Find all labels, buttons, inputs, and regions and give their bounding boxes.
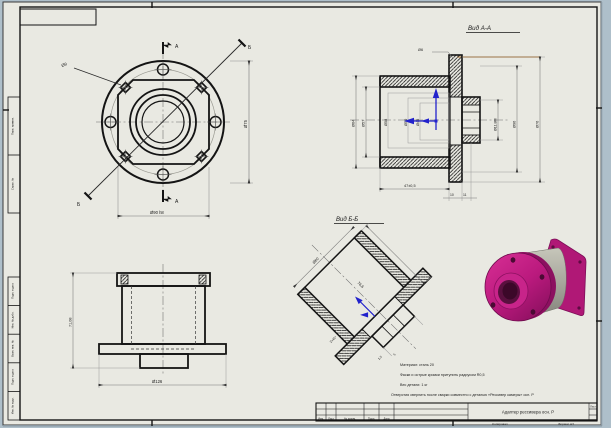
sheet-cell-label: Лист <box>590 405 596 409</box>
engineering-drawing: Перв. примен. Справ. № Подп. и дата Инв.… <box>0 0 611 428</box>
note-line-4: Отверстия сверлить после сварки совместн… <box>391 393 534 397</box>
dim-base-dia: Ø126 <box>152 379 163 384</box>
view-aa-label: Вид А-А <box>468 25 491 32</box>
back-flange-hole <box>551 245 554 248</box>
margin-label-perv: Перв. примен. <box>11 117 15 135</box>
back-flange-hole <box>578 260 581 263</box>
margin-label-podp2: Подп. и дата <box>11 369 15 385</box>
dim-step-2: 11 <box>463 193 467 197</box>
margin-label-vzam: Взам. инв. № <box>11 340 15 357</box>
dim-right-mid: Ø96 <box>513 121 517 128</box>
view-bb-label: Вид Б-Б <box>336 217 358 223</box>
format-label: Формат А3 <box>558 422 574 426</box>
note-line-3: Вес детали: 1 кг <box>400 383 428 387</box>
margin-label-sprav: Справ. № <box>11 178 15 190</box>
part-name: Адаптер рессивера осн. Р <box>502 410 554 415</box>
margin-label-inv-dubl: Инв. № дубл. <box>11 311 15 328</box>
th-data: Дата <box>384 417 390 421</box>
copied-label: Копировал <box>492 422 508 426</box>
drawing-canvas: Перв. примен. Справ. № Подп. и дата Инв.… <box>0 0 611 428</box>
dim-label-right: Ø75 <box>243 119 248 128</box>
dim-right-outer: Ø76 <box>536 121 540 128</box>
bore-depth <box>503 283 518 300</box>
th-list: Лист <box>328 417 335 421</box>
note-line-1: Материал: сталь 20 <box>400 363 434 367</box>
dim-bore-3: Ø45 <box>416 119 420 126</box>
dim-step-1: 10 <box>450 193 454 197</box>
dim-label-bottom: Ø90 h8 <box>150 210 164 215</box>
dim-height: 71,08 <box>69 317 73 327</box>
margin-label-inv-podl: Инв. № подл. <box>11 397 15 414</box>
dim-left-outer: Ø64 <box>352 120 356 127</box>
dim-bore-1: Ø58 <box>384 119 388 126</box>
dim-left-inner: Ø57 <box>362 120 366 127</box>
sheet-paper <box>3 2 601 425</box>
th-izm: Изм. <box>318 417 324 421</box>
back-flange-hole <box>577 306 580 309</box>
dim-length: 47±0,5 <box>404 184 416 188</box>
margin-label-podp1: Подп. и дата <box>11 283 15 299</box>
note-line-2: Фаски и острые кромки притупить радиусом… <box>400 373 485 377</box>
dim-top-hole: Ø6 <box>418 48 423 52</box>
th-podp: Подп. <box>368 417 375 421</box>
dim-thread: Ø11,8М <box>494 118 498 131</box>
dim-bore-2: Ø50 <box>404 119 408 126</box>
th-doc: № докум. <box>344 418 356 421</box>
